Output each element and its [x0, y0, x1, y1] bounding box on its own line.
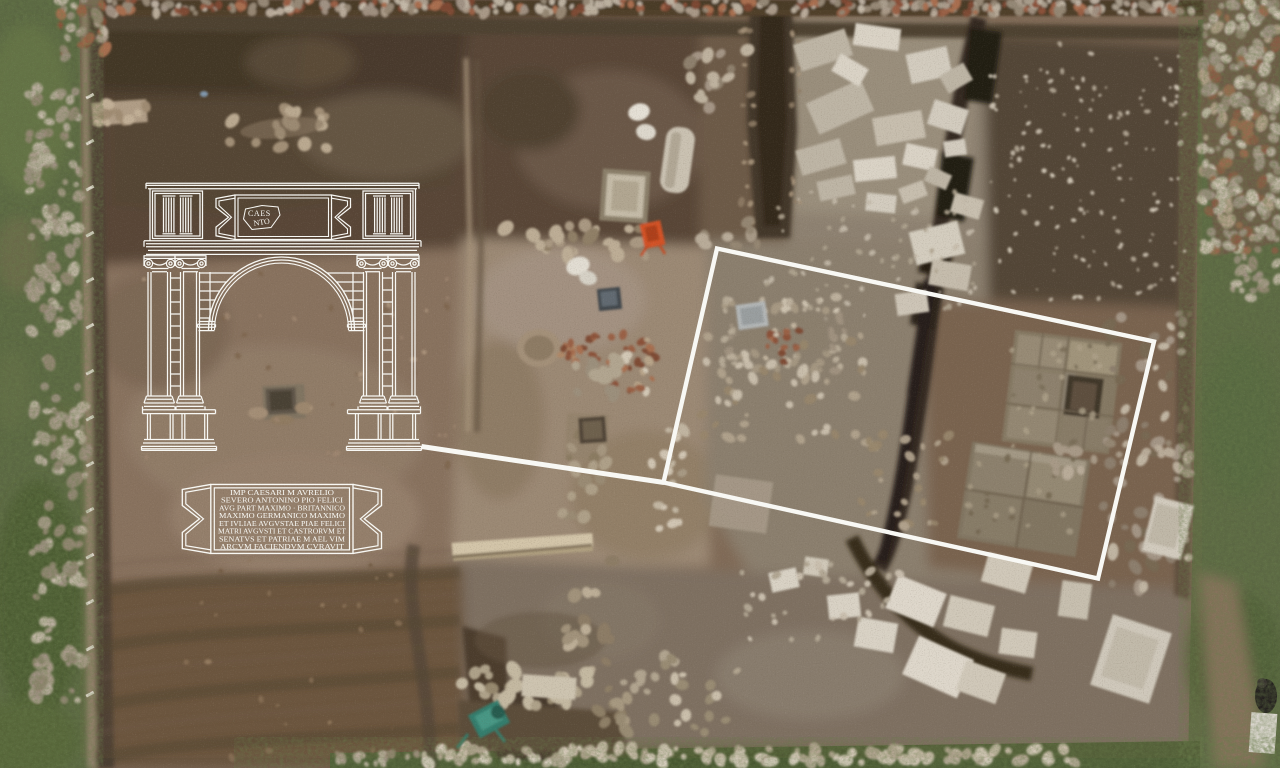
- svg-text:MAXIMO GERMANICO MAXIMO: MAXIMO GERMANICO MAXIMO: [219, 512, 345, 520]
- svg-text:ARCVM FACIENDVM CVRAVIT: ARCVM FACIENDVM CVRAVIT: [220, 543, 345, 551]
- svg-text:MATRI AVGVSTI ET CASTRORVM ET: MATRI AVGVSTI ET CASTRORVM ET: [218, 528, 347, 536]
- svg-text:IMP CAESARI M AVRELIO: IMP CAESARI M AVRELIO: [230, 489, 334, 497]
